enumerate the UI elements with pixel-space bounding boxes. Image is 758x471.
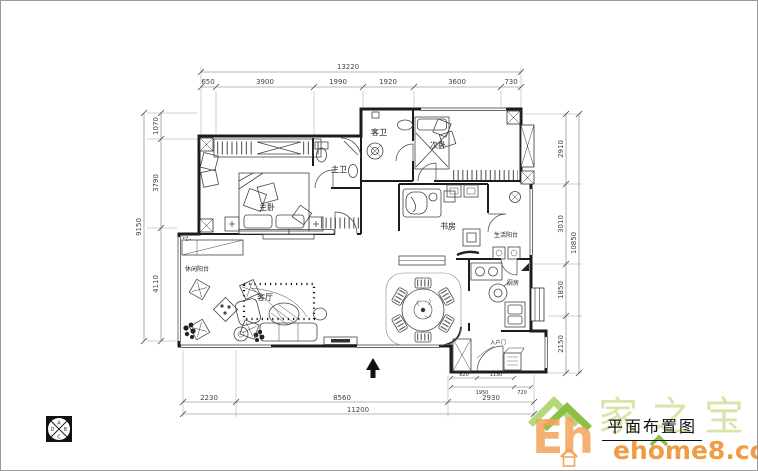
compass-c: C bbox=[57, 435, 61, 441]
watermark-small-house-icon bbox=[561, 437, 667, 466]
compass-d: D bbox=[51, 427, 55, 433]
dim-bottom-1: 2230 bbox=[200, 394, 218, 402]
floorplan-canvas: 13220 650 3900 1990 1920 3600 730 9150 1… bbox=[0, 0, 758, 471]
dim-entry-720: 720 bbox=[517, 390, 527, 396]
label-master-bath: 主卫 bbox=[331, 164, 347, 174]
compass-symbol: A B C D bbox=[46, 416, 72, 442]
watermark-roof-icon bbox=[533, 401, 587, 426]
dining-furniture bbox=[386, 273, 461, 345]
room-labels: 主卧 主卫 客卫 次卧 书房 生活阳台 休闲阳台 客厅 厨房 入户门 bbox=[185, 127, 519, 346]
compass-b: B bbox=[64, 427, 68, 433]
label-utility-balcony: 生活阳台 bbox=[494, 231, 518, 239]
label-second-bedroom: 次卧 bbox=[430, 140, 446, 150]
compass-a: A bbox=[57, 421, 61, 427]
floorplan-drawing: 13220 650 3900 1990 1920 3600 730 9150 1… bbox=[1, 1, 758, 471]
entry-furniture bbox=[453, 339, 524, 371]
dim-right-overall: 10850 bbox=[570, 232, 578, 254]
plant bbox=[183, 323, 195, 339]
dim-top-overall: 13220 bbox=[337, 63, 359, 71]
leisure-balcony-furniture bbox=[181, 234, 259, 340]
wall-columns bbox=[200, 111, 534, 232]
dim-bottom-2: 8560 bbox=[333, 394, 351, 402]
dim-left-3: 4110 bbox=[152, 275, 160, 293]
dim-top-3: 1990 bbox=[329, 78, 347, 86]
dim-bottom-overall: 11200 bbox=[347, 406, 369, 414]
dim-top-1: 650 bbox=[201, 78, 214, 86]
north-arrow bbox=[366, 358, 380, 378]
label-study: 书房 bbox=[440, 221, 456, 231]
dim-entry-1950: 1950 bbox=[476, 390, 489, 396]
dim-top-2: 3900 bbox=[256, 78, 274, 86]
dim-left-2: 3790 bbox=[152, 174, 160, 192]
label-kitchen: 厨房 bbox=[507, 279, 519, 287]
dim-top-6: 730 bbox=[504, 78, 517, 86]
drawing-title: 平面布置图 bbox=[602, 413, 702, 441]
label-entry-door: 入户门 bbox=[490, 338, 506, 346]
label-living-room: 客厅 bbox=[257, 292, 273, 302]
label-master-bedroom: 主卧 bbox=[259, 202, 275, 212]
dim-top-4: 1920 bbox=[379, 78, 397, 86]
label-guest-bath: 客卫 bbox=[371, 127, 387, 137]
dim-right-1: 2910 bbox=[557, 140, 565, 158]
dim-top-5: 3600 bbox=[448, 78, 466, 86]
dim-right-4: 2150 bbox=[557, 335, 565, 353]
dim-right-2: 3010 bbox=[557, 215, 565, 233]
dim-right-3: 1850 bbox=[557, 281, 565, 299]
dim-left-1: 1070 bbox=[152, 117, 160, 135]
dim-left-overall: 9150 bbox=[135, 218, 143, 236]
label-leisure-balcony: 休闲阳台 bbox=[185, 265, 209, 273]
